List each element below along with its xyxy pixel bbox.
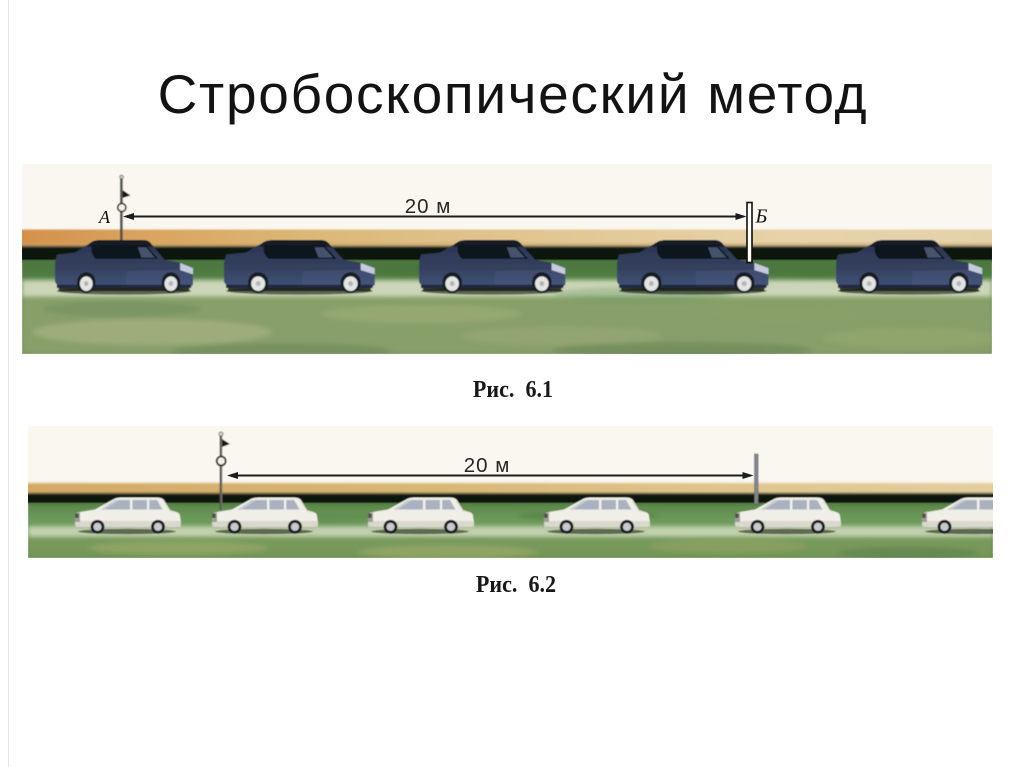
svg-text:А: А — [98, 207, 111, 227]
svg-text:20 м: 20 м — [464, 454, 511, 477]
svg-text:20 м: 20 м — [405, 195, 452, 218]
svg-text:Б: Б — [755, 206, 768, 228]
